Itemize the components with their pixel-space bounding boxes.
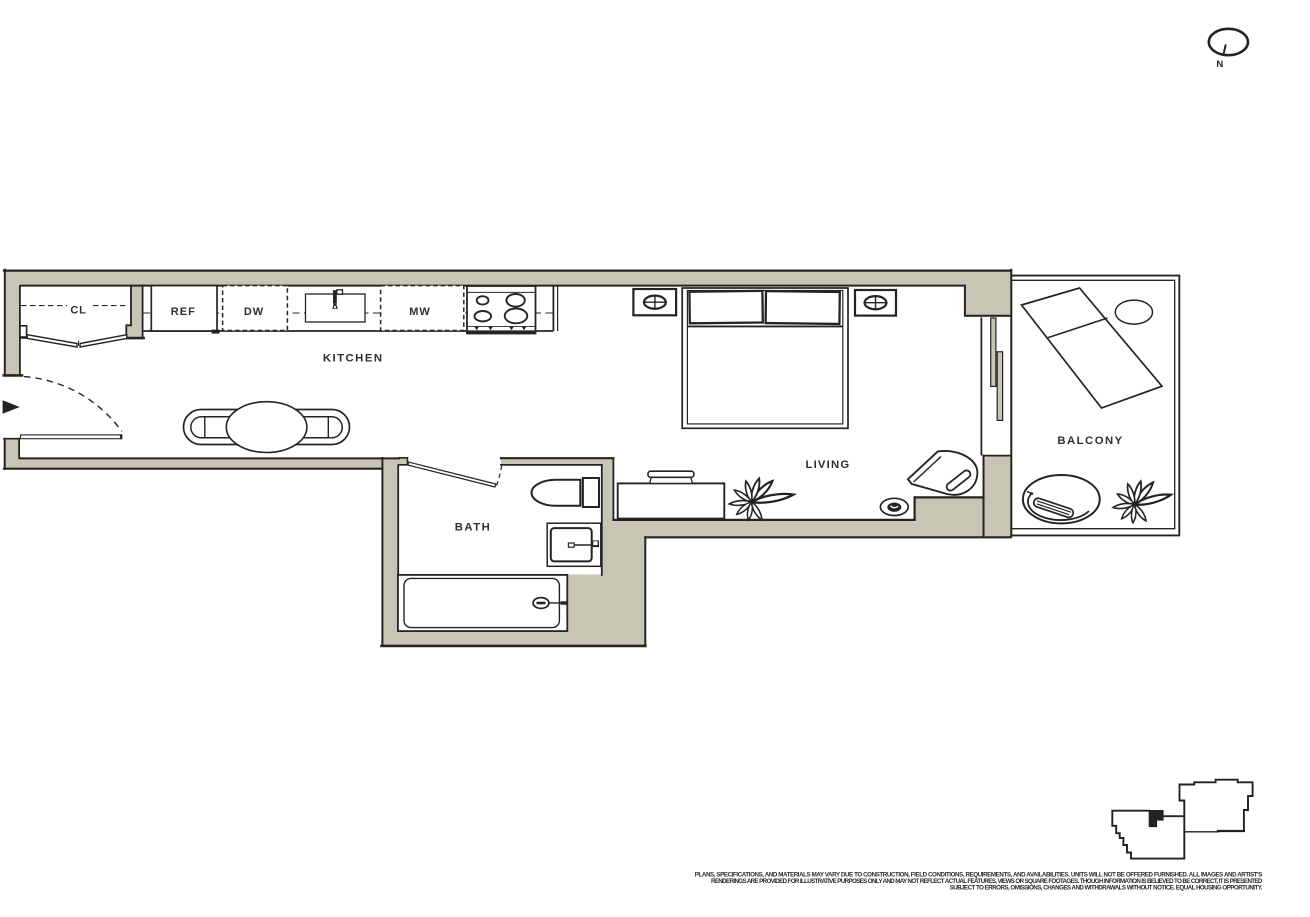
svg-text:MW: MW <box>409 306 431 318</box>
svg-text:SUBJECT TO ERRORS, OMISSIONS,: SUBJECT TO ERRORS, OMISSIONS, CHANGES AN… <box>950 884 1263 891</box>
svg-text:REF: REF <box>171 306 196 318</box>
svg-text:BATH: BATH <box>455 521 492 533</box>
svg-text:CL: CL <box>70 305 86 317</box>
svg-text:BALCONY: BALCONY <box>1057 435 1123 447</box>
svg-text:KITCHEN: KITCHEN <box>323 352 384 364</box>
svg-text:N: N <box>1216 59 1223 70</box>
svg-text:LIVING: LIVING <box>805 459 850 471</box>
svg-text:DW: DW <box>244 306 264 318</box>
